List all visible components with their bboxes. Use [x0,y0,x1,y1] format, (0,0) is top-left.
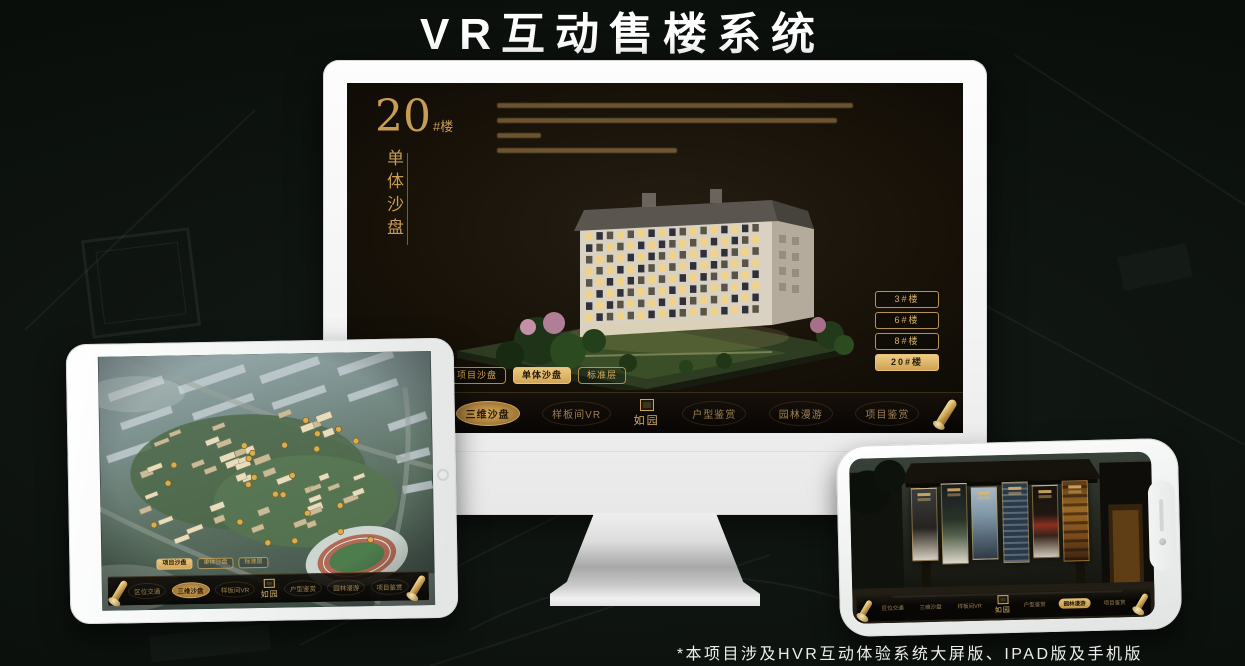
building-3d-render [442,155,862,390]
phone-device: 区位交通 三维沙盘 样板间VR 如园 户型鉴赏 园林漫游 项目鉴赏 [836,438,1183,637]
subtitle-divider [407,153,408,245]
nav-item-garden-tour[interactable]: 园林漫游 [769,401,833,426]
phone-nav-showroom-vr[interactable]: 样板间VR [954,601,984,612]
tablet-tab-single-sandbox[interactable]: 单体沙盘 [197,558,233,570]
building-selector: 3#楼 6#楼 8#楼 20#楼 [875,291,939,375]
building-subtitle: 单体沙盘 [381,149,406,241]
seal-icon [640,399,654,411]
monitor-sub-tabs: 项目沙盘 单体沙盘 标准层 [448,367,626,384]
nav-item-3d-sandbox[interactable]: 三维沙盘 [456,401,520,426]
tab-standard-floor[interactable]: 标准层 [578,367,626,384]
scroll-menu-icon-right[interactable] [1134,592,1149,611]
phone-nav-location[interactable]: 区位交通 [879,603,907,614]
phone-nav-project-gallery[interactable]: 项目鉴赏 [1100,597,1128,608]
building-button-3[interactable]: 3#楼 [875,291,939,308]
building-button-6[interactable]: 6#楼 [875,312,939,329]
tablet-device: 项目沙盘 单体沙盘 标准层 区位交通 三维沙盘 样板间VR 如园 户型鉴赏 园林… [66,338,459,625]
brand-logo-text: 如园 [634,412,660,428]
tablet-sub-tabs: 项目沙盘 单体沙盘 标准层 [156,557,268,570]
tablet-brand-logo: 如园 [260,578,278,599]
tablet-nav-floorplans[interactable]: 户型鉴赏 [284,580,322,597]
nav-item-floorplans[interactable]: 户型鉴赏 [682,401,746,426]
gallery-panel-courtyard[interactable] [941,483,969,565]
footnote: *本项目涉及HVR互动体验系统大屏版、IPAD版及手机版 [677,640,1143,664]
tab-single-sandbox[interactable]: 单体沙盘 [513,367,571,384]
building-button-8[interactable]: 8#楼 [875,333,939,350]
tablet-tab-project-sandbox[interactable]: 项目沙盘 [156,558,192,570]
scroll-menu-icon-right[interactable] [408,574,426,598]
phone-brand-logo-text: 如园 [995,605,1011,615]
speaker-icon [1159,499,1164,531]
tablet-nav-3d-sandbox[interactable]: 三维沙盘 [171,582,209,599]
tablet-nav-location[interactable]: 区位交通 [128,583,166,600]
scroll-menu-icon[interactable] [935,398,959,428]
phone-nav-3d-sandbox[interactable]: 三维沙盘 [917,602,945,613]
building-heading: 20#楼 [375,95,453,139]
tablet-nav-showroom-vr[interactable]: 样板间VR [215,581,256,598]
nav-item-project-gallery[interactable]: 项目鉴赏 [855,401,919,426]
page-title: VR互动售楼系统 [420,0,825,62]
gallery-panel-cabinet[interactable] [1062,480,1090,562]
phone-notch [1148,480,1177,571]
gallery-panel-exterior[interactable] [971,486,999,560]
building-button-20[interactable]: 20#楼 [875,354,939,371]
phone-screen: 区位交通 三维沙盘 样板间VR 如园 户型鉴赏 园林漫游 项目鉴赏 [849,452,1155,624]
phone-nav-floorplans[interactable]: 户型鉴赏 [1021,599,1049,610]
phone-nav-garden-tour[interactable]: 园林漫游 [1059,598,1091,609]
brand-logo: 如园 [634,399,660,428]
tablet-nav-garden-tour[interactable]: 园林漫游 [327,579,365,596]
home-button[interactable] [437,469,449,481]
seal-icon [997,595,1008,604]
tablet-brand-logo-text: 如园 [261,588,279,599]
seal-icon [264,578,275,587]
tablet-nav-project-gallery[interactable]: 项目鉴赏 [370,578,408,595]
camera-icon [1159,538,1166,545]
gallery-panel-entrance[interactable] [1032,485,1060,559]
tablet-bottom-nav: 区位交通 三维沙盘 样板间VR 如园 户型鉴赏 园林漫游 项目鉴赏 [108,571,429,606]
tab-project-sandbox[interactable]: 项目沙盘 [448,367,506,384]
promo-canvas: VR互动售楼系统 20#楼 单体沙盘 [0,0,1245,666]
gallery-panel-interior[interactable] [911,488,939,562]
building-number: 20 [375,91,431,142]
gallery-panel-facade[interactable] [1002,482,1030,564]
intro-text-lines [497,103,853,163]
building-number-suffix: #楼 [433,119,453,134]
scroll-menu-icon-left[interactable] [110,579,128,603]
tablet-screen: 项目沙盘 单体沙盘 标准层 区位交通 三维沙盘 样板间VR 如园 户型鉴赏 园林… [98,351,435,611]
scroll-menu-icon-left[interactable] [858,599,873,618]
nav-item-showroom-vr[interactable]: 样板间VR [542,401,611,426]
tablet-tab-standard-floor[interactable]: 标准层 [238,557,268,569]
phone-brand-logo: 如园 [994,595,1010,615]
